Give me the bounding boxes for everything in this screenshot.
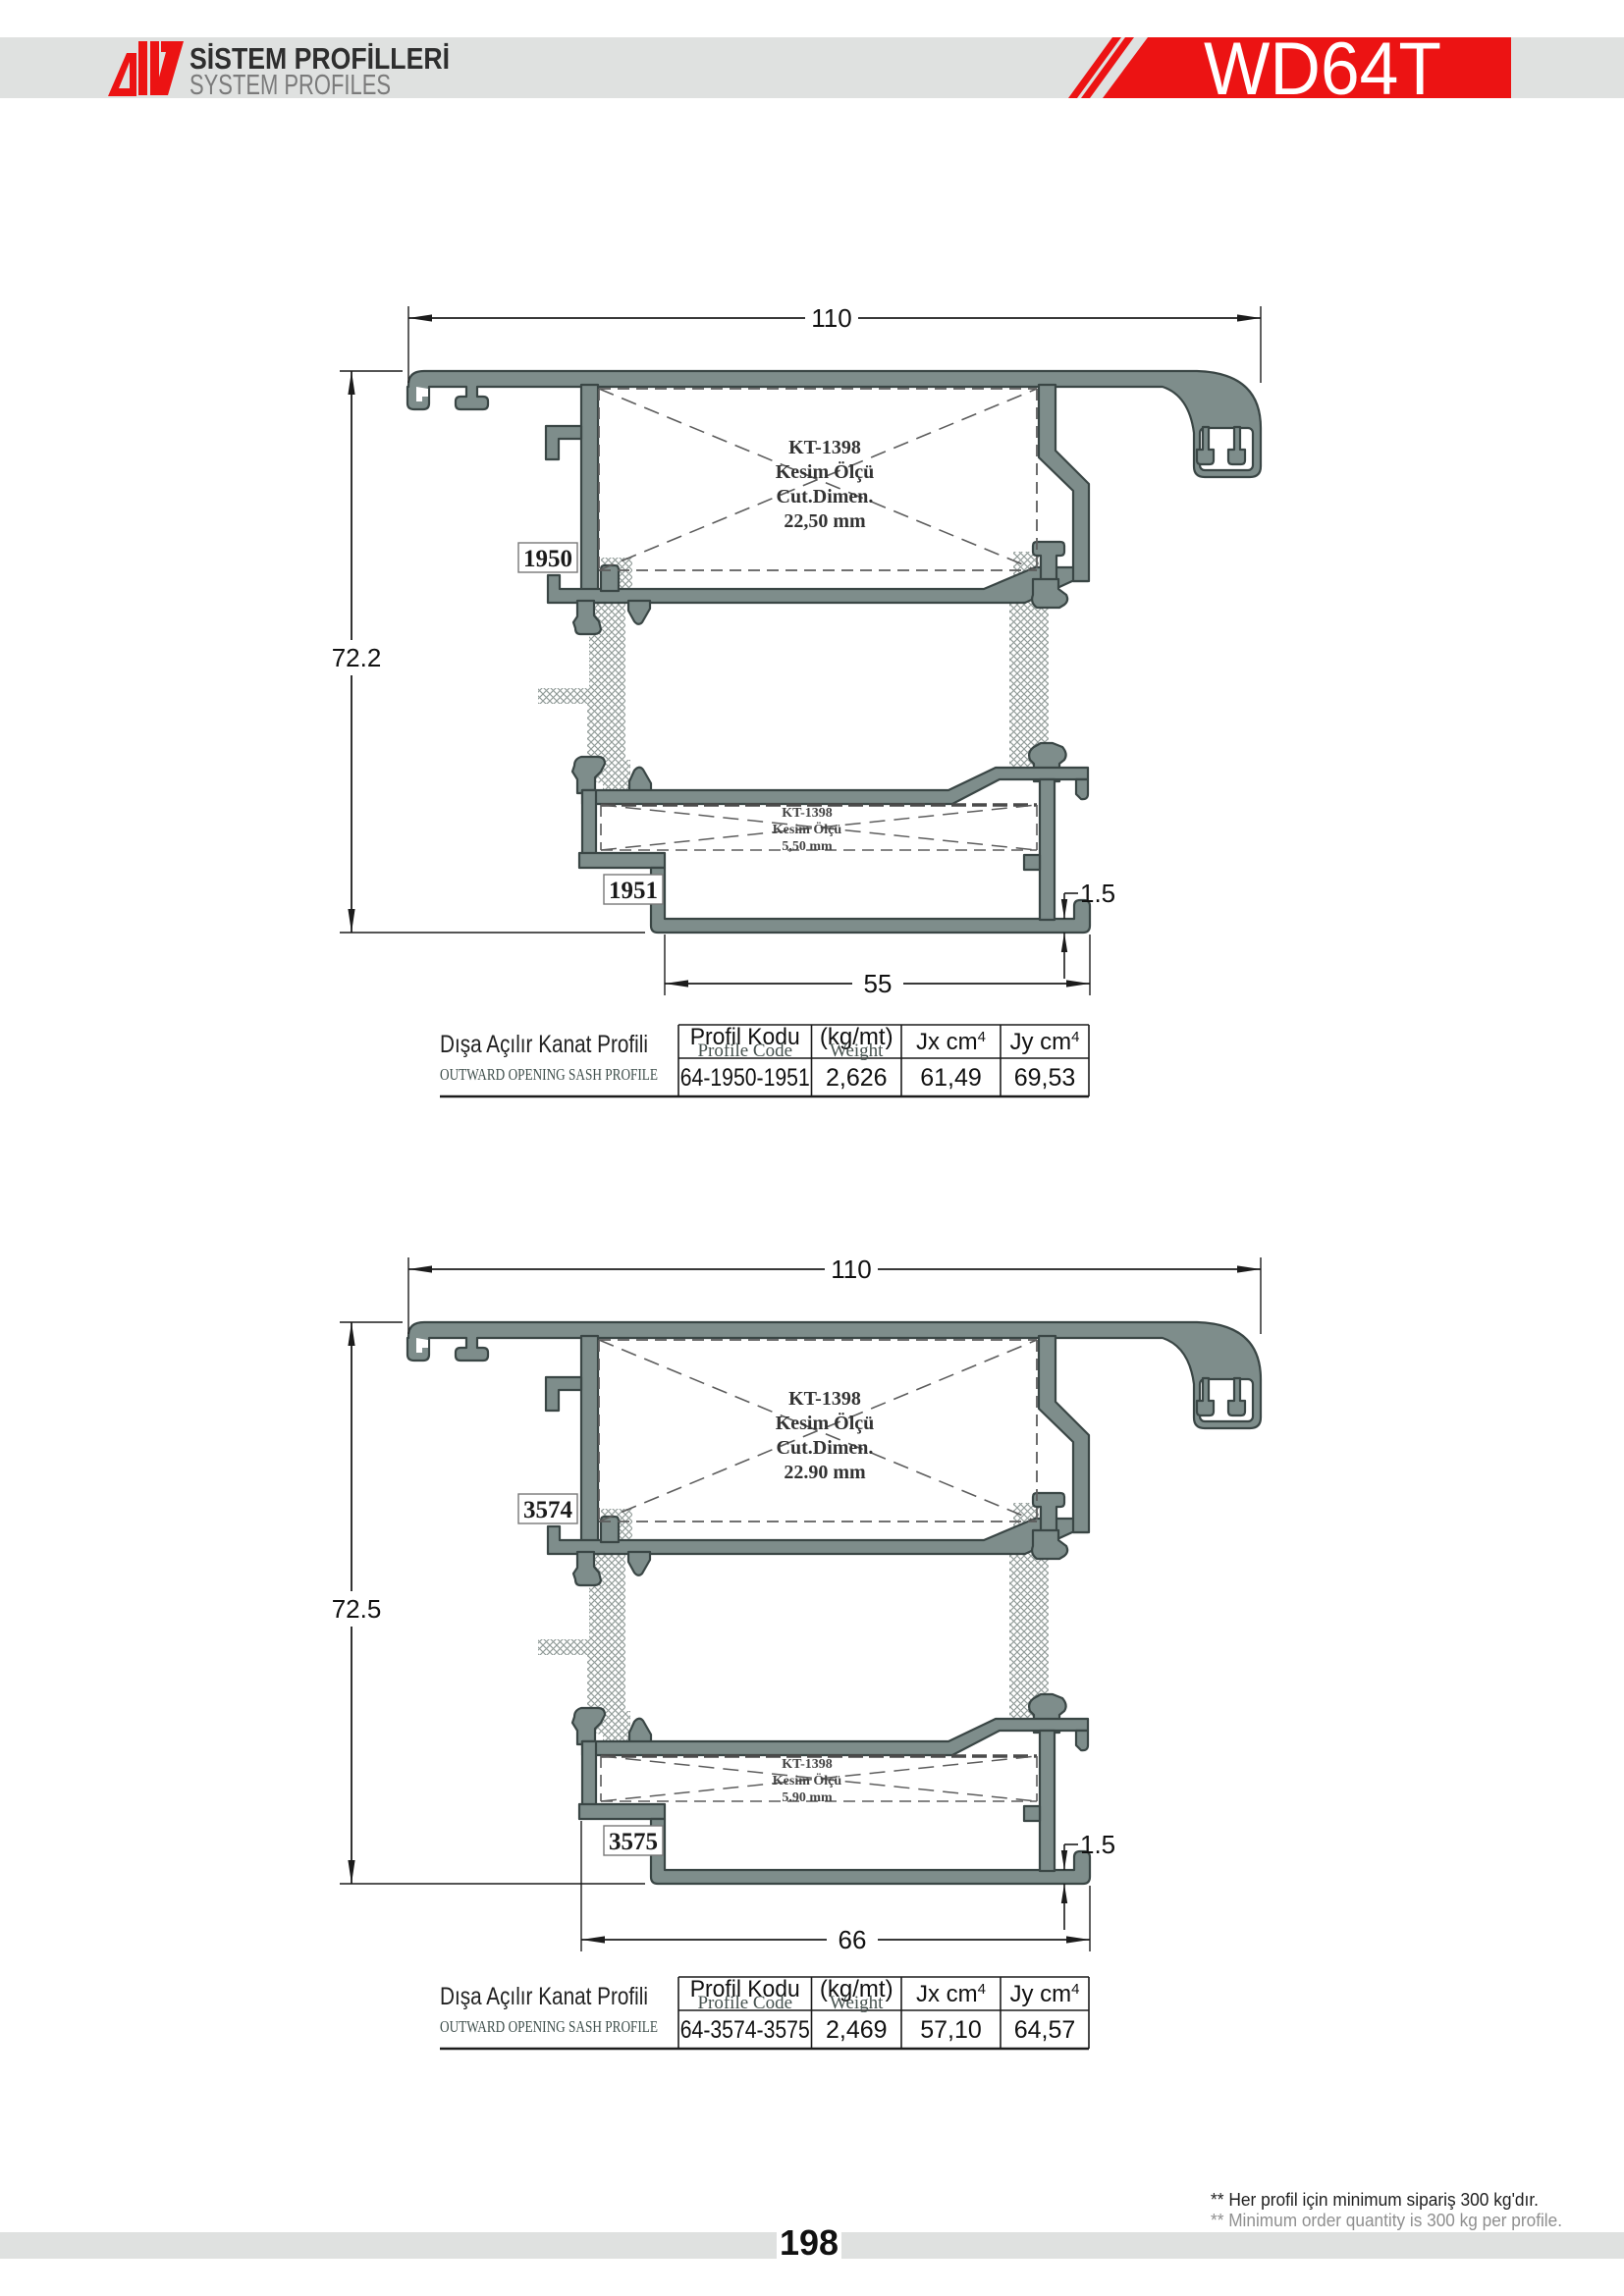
svg-text:SYSTEM PROFILES: SYSTEM PROFILES: [189, 70, 391, 101]
svg-text:Profile Code: Profile Code: [697, 1993, 792, 2013]
svg-text:Weight: Weight: [830, 1041, 884, 1061]
svg-text:2,469: 2,469: [826, 2016, 888, 2044]
svg-text:WD64T: WD64T: [1204, 27, 1441, 111]
svg-text:KT-1398: KT-1398: [788, 1388, 861, 1410]
svg-text:1950: 1950: [523, 546, 572, 572]
svg-text:Jy cm4: Jy cm4: [1009, 1981, 1079, 2007]
svg-text:64,57: 64,57: [1014, 2016, 1076, 2044]
svg-text:64-3574-3575: 64-3574-3575: [680, 2016, 810, 2044]
svg-text:66: 66: [839, 1925, 867, 1954]
svg-text:Kesim Ölçü: Kesim Ölçü: [776, 460, 875, 483]
svg-text:KT-1398: KT-1398: [782, 1757, 833, 1772]
svg-text:64-1950-1951: 64-1950-1951: [680, 1064, 810, 1092]
svg-text:Kesim Ölçü: Kesim Ölçü: [773, 1772, 842, 1789]
svg-text:22.90 mm: 22.90 mm: [784, 1462, 866, 1483]
svg-text:Cut.Dimen.: Cut.Dimen.: [777, 1437, 874, 1459]
svg-text:** Her profil için minimum si: ** Her profil için minimum sipariş 300 k…: [1211, 2190, 1539, 2210]
svg-text:Cut.Dimen.: Cut.Dimen.: [777, 486, 874, 507]
svg-text:** Minimum order quantity is 3: ** Minimum order quantity is 300 kg per …: [1211, 2211, 1562, 2230]
svg-text:Profile Code: Profile Code: [697, 1041, 792, 1061]
svg-text:110: 110: [831, 1255, 871, 1284]
svg-text:1.5: 1.5: [1080, 879, 1115, 908]
svg-text:OUTWARD OPENING SASH PROFILE: OUTWARD OPENING SASH PROFILE: [440, 2017, 658, 2036]
svg-text:KT-1398: KT-1398: [788, 437, 861, 458]
svg-text:Dışa Açılır Kanat Profili: Dışa Açılır Kanat Profili: [440, 1983, 648, 2010]
svg-text:3574: 3574: [523, 1497, 573, 1523]
svg-text:72.2: 72.2: [332, 643, 382, 672]
svg-text:22,50 mm: 22,50 mm: [784, 510, 866, 532]
svg-text:57,10: 57,10: [920, 2016, 982, 2044]
svg-text:Jy cm4: Jy cm4: [1009, 1029, 1079, 1055]
svg-text:2,626: 2,626: [826, 1064, 888, 1092]
svg-text:1951: 1951: [609, 878, 658, 904]
svg-text:Jx cm4: Jx cm4: [916, 1029, 986, 1055]
svg-text:Kesim Ölçü: Kesim Ölçü: [773, 821, 842, 837]
svg-text:KT-1398: KT-1398: [782, 806, 833, 821]
svg-text:Kesim Ölçü: Kesim Ölçü: [776, 1412, 875, 1434]
svg-text:3575: 3575: [609, 1829, 658, 1855]
svg-text:5.90 mm: 5.90 mm: [782, 1790, 833, 1805]
svg-text:69,53: 69,53: [1014, 1064, 1076, 1092]
svg-text:110: 110: [811, 303, 851, 333]
svg-text:1.5: 1.5: [1080, 1830, 1115, 1859]
svg-text:Jx cm4: Jx cm4: [916, 1981, 986, 2007]
svg-text:Dışa Açılır Kanat Profili: Dışa Açılır Kanat Profili: [440, 1031, 648, 1058]
svg-text:Weight: Weight: [830, 1993, 884, 2013]
svg-text:61,49: 61,49: [920, 1064, 982, 1092]
svg-text:5,50 mm: 5,50 mm: [782, 839, 833, 854]
svg-text:OUTWARD OPENING SASH PROFILE: OUTWARD OPENING SASH PROFILE: [440, 1065, 658, 1084]
svg-text:55: 55: [864, 969, 893, 998]
svg-text:198: 198: [780, 2222, 839, 2263]
svg-text:72.5: 72.5: [332, 1594, 382, 1624]
